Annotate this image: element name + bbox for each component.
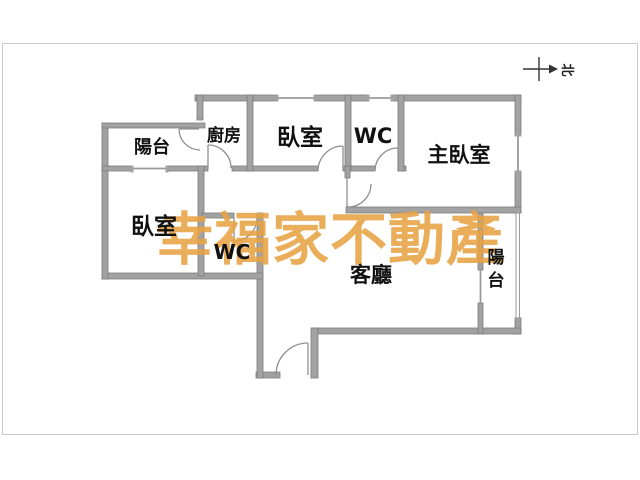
door-wc-top	[375, 148, 398, 171]
railing-balcony-right	[516, 213, 520, 318]
door-entry	[276, 343, 308, 375]
wall-bottom-step	[311, 328, 318, 378]
north-label: 北	[559, 63, 574, 76]
wall-top-1	[195, 95, 277, 101]
room-label-wc-top: WC	[354, 124, 393, 148]
wall-left-outer	[102, 123, 108, 279]
north-arrowhead	[549, 65, 558, 74]
floor-plan-page: 幸福家不動產 陽台 廚房 臥室 WC 主臥室 臥室 WC 客廳 陽 台 北	[0, 0, 640, 480]
wall-bedroom-left-bottom	[102, 273, 263, 279]
wall-bottom-main	[312, 328, 521, 334]
north-arrow-icon: 北	[523, 57, 574, 81]
door-master	[348, 184, 371, 207]
wall-kitchen-bedroom	[247, 95, 253, 171]
wall-kitchen-left-upper	[197, 95, 203, 120]
room-label-balcony-right-char2: 台	[488, 270, 505, 291]
door-balcony-kitchen	[179, 129, 200, 150]
wall-wc-master	[398, 95, 404, 171]
wall-top-2	[315, 95, 368, 101]
wall-hall-stub	[345, 166, 350, 178]
room-label-kitchen: 廚房	[207, 125, 241, 146]
room-label-living-room: 客廳	[350, 263, 392, 287]
room-label-bedroom-top: 臥室	[277, 124, 323, 151]
floor-plan-canvas: 幸福家不動產 陽台 廚房 臥室 WC 主臥室 臥室 WC 客廳 陽 台 北	[0, 0, 640, 480]
room-label-balcony-right-char1: 陽	[488, 248, 505, 268]
room-label-bedroom-left: 臥室	[131, 213, 177, 240]
wall-right-upper	[515, 95, 521, 135]
room-label-wc-bottom: WC	[214, 240, 251, 264]
wall-row-bottom-3	[232, 166, 318, 171]
room-label-master-bedroom: 主臥室	[428, 143, 491, 167]
wall-balcony-left-top	[102, 123, 205, 128]
agency-watermark: 幸福家不動產	[156, 207, 504, 273]
room-label-balcony-left: 陽台	[134, 136, 170, 158]
wall-bedroom-wc	[345, 95, 351, 171]
wall-row-bottom-1	[102, 166, 132, 171]
wall-balcony-right-partition-lower	[478, 303, 483, 334]
door-kitchen	[208, 145, 231, 168]
wall-top-3	[392, 95, 521, 101]
